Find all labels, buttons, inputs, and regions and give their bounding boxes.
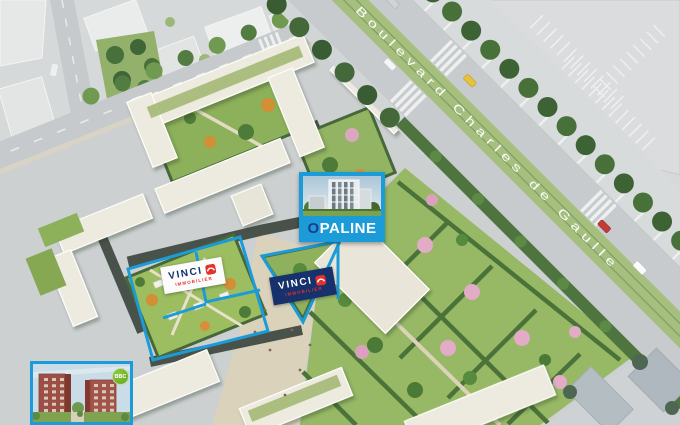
- vinci-rosette-icon: [205, 263, 218, 276]
- opaline-label-initial: O: [307, 221, 319, 236]
- vinci-rosette-icon: [315, 273, 328, 286]
- opaline-callout[interactable]: OPALINE: [299, 172, 385, 242]
- bbc-badge: BBC: [112, 368, 129, 385]
- opaline-label: OPALINE: [303, 218, 381, 238]
- opaline-building-photo: [303, 176, 381, 216]
- opaline-label-rest: PALINE: [320, 221, 377, 236]
- masterplan-view: Boulevard Charles de Gaulle: [0, 0, 680, 425]
- project-thumbnail[interactable]: BBC: [30, 361, 133, 425]
